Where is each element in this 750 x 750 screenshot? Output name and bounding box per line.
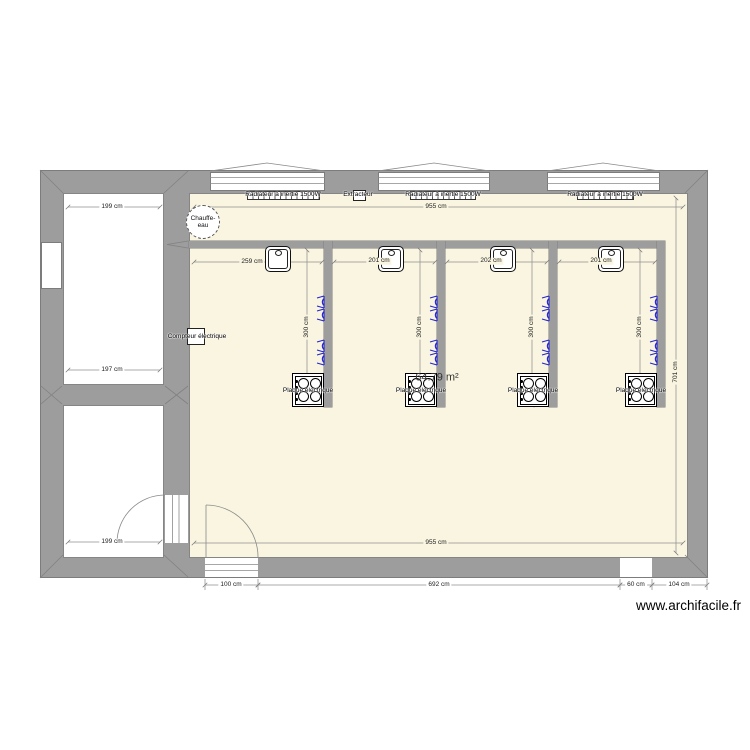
dim-label-bottom: 60 cm xyxy=(625,582,647,589)
dim-label-bottom: 104 cm xyxy=(666,582,691,589)
dim-label-bottom: 100 cm xyxy=(218,582,243,589)
room-area-label: 64.79 m² xyxy=(415,373,458,384)
radiator-label: Radiateur à inertie 1500W xyxy=(405,192,481,199)
window-mullion-lines xyxy=(210,178,660,184)
extractor-label: Extracteur xyxy=(343,192,373,199)
electric-meter-label: Compteur électrique xyxy=(168,334,227,341)
dim-label-bottom-inner: 955 cm xyxy=(423,540,448,547)
dim-label-bay: 201 cm xyxy=(588,258,613,265)
window-peak-lines xyxy=(210,163,660,171)
dim-label-bay: 259 cm xyxy=(239,259,264,266)
floor-plan: Chauffe- eau xyxy=(0,0,750,750)
cooktop-label: Plaque électrique xyxy=(283,388,333,395)
cooktop-label: Plaque électrique xyxy=(396,388,446,395)
dim-label-partition: 300 cm xyxy=(637,314,644,339)
dim-label-partition: 300 cm xyxy=(529,314,536,339)
door-icon xyxy=(117,495,258,571)
watermark: www.archifacile.fr xyxy=(636,598,746,613)
dim-label-bottom: 692 cm xyxy=(426,582,451,589)
outlet-icon xyxy=(317,296,657,365)
radiator-label: Radiateur à inertie 1500W xyxy=(245,192,321,199)
cooktop-label: Plaque électrique xyxy=(508,388,558,395)
dim-label-right: 701 cm xyxy=(673,359,680,384)
dim-label-bay: 201 cm xyxy=(366,258,391,265)
dim-label-left-room-mid: 197 cm xyxy=(99,367,124,374)
plan-symbols xyxy=(0,0,750,750)
dim-label-partition: 300 cm xyxy=(304,314,311,339)
cooktop-label: Plaque électrique xyxy=(616,388,666,395)
radiator-label: Radiateur à inertie 1500W xyxy=(567,192,643,199)
wall-joint-lines xyxy=(40,170,708,578)
dim-label-left-room-top: 199 cm xyxy=(99,204,124,211)
dim-label-top: 955 cm xyxy=(423,204,448,211)
dim-label-partition: 300 cm xyxy=(417,314,424,339)
dim-label-left-room-bottom: 199 cm xyxy=(99,539,124,546)
dim-label-bay: 202 cm xyxy=(478,258,503,265)
